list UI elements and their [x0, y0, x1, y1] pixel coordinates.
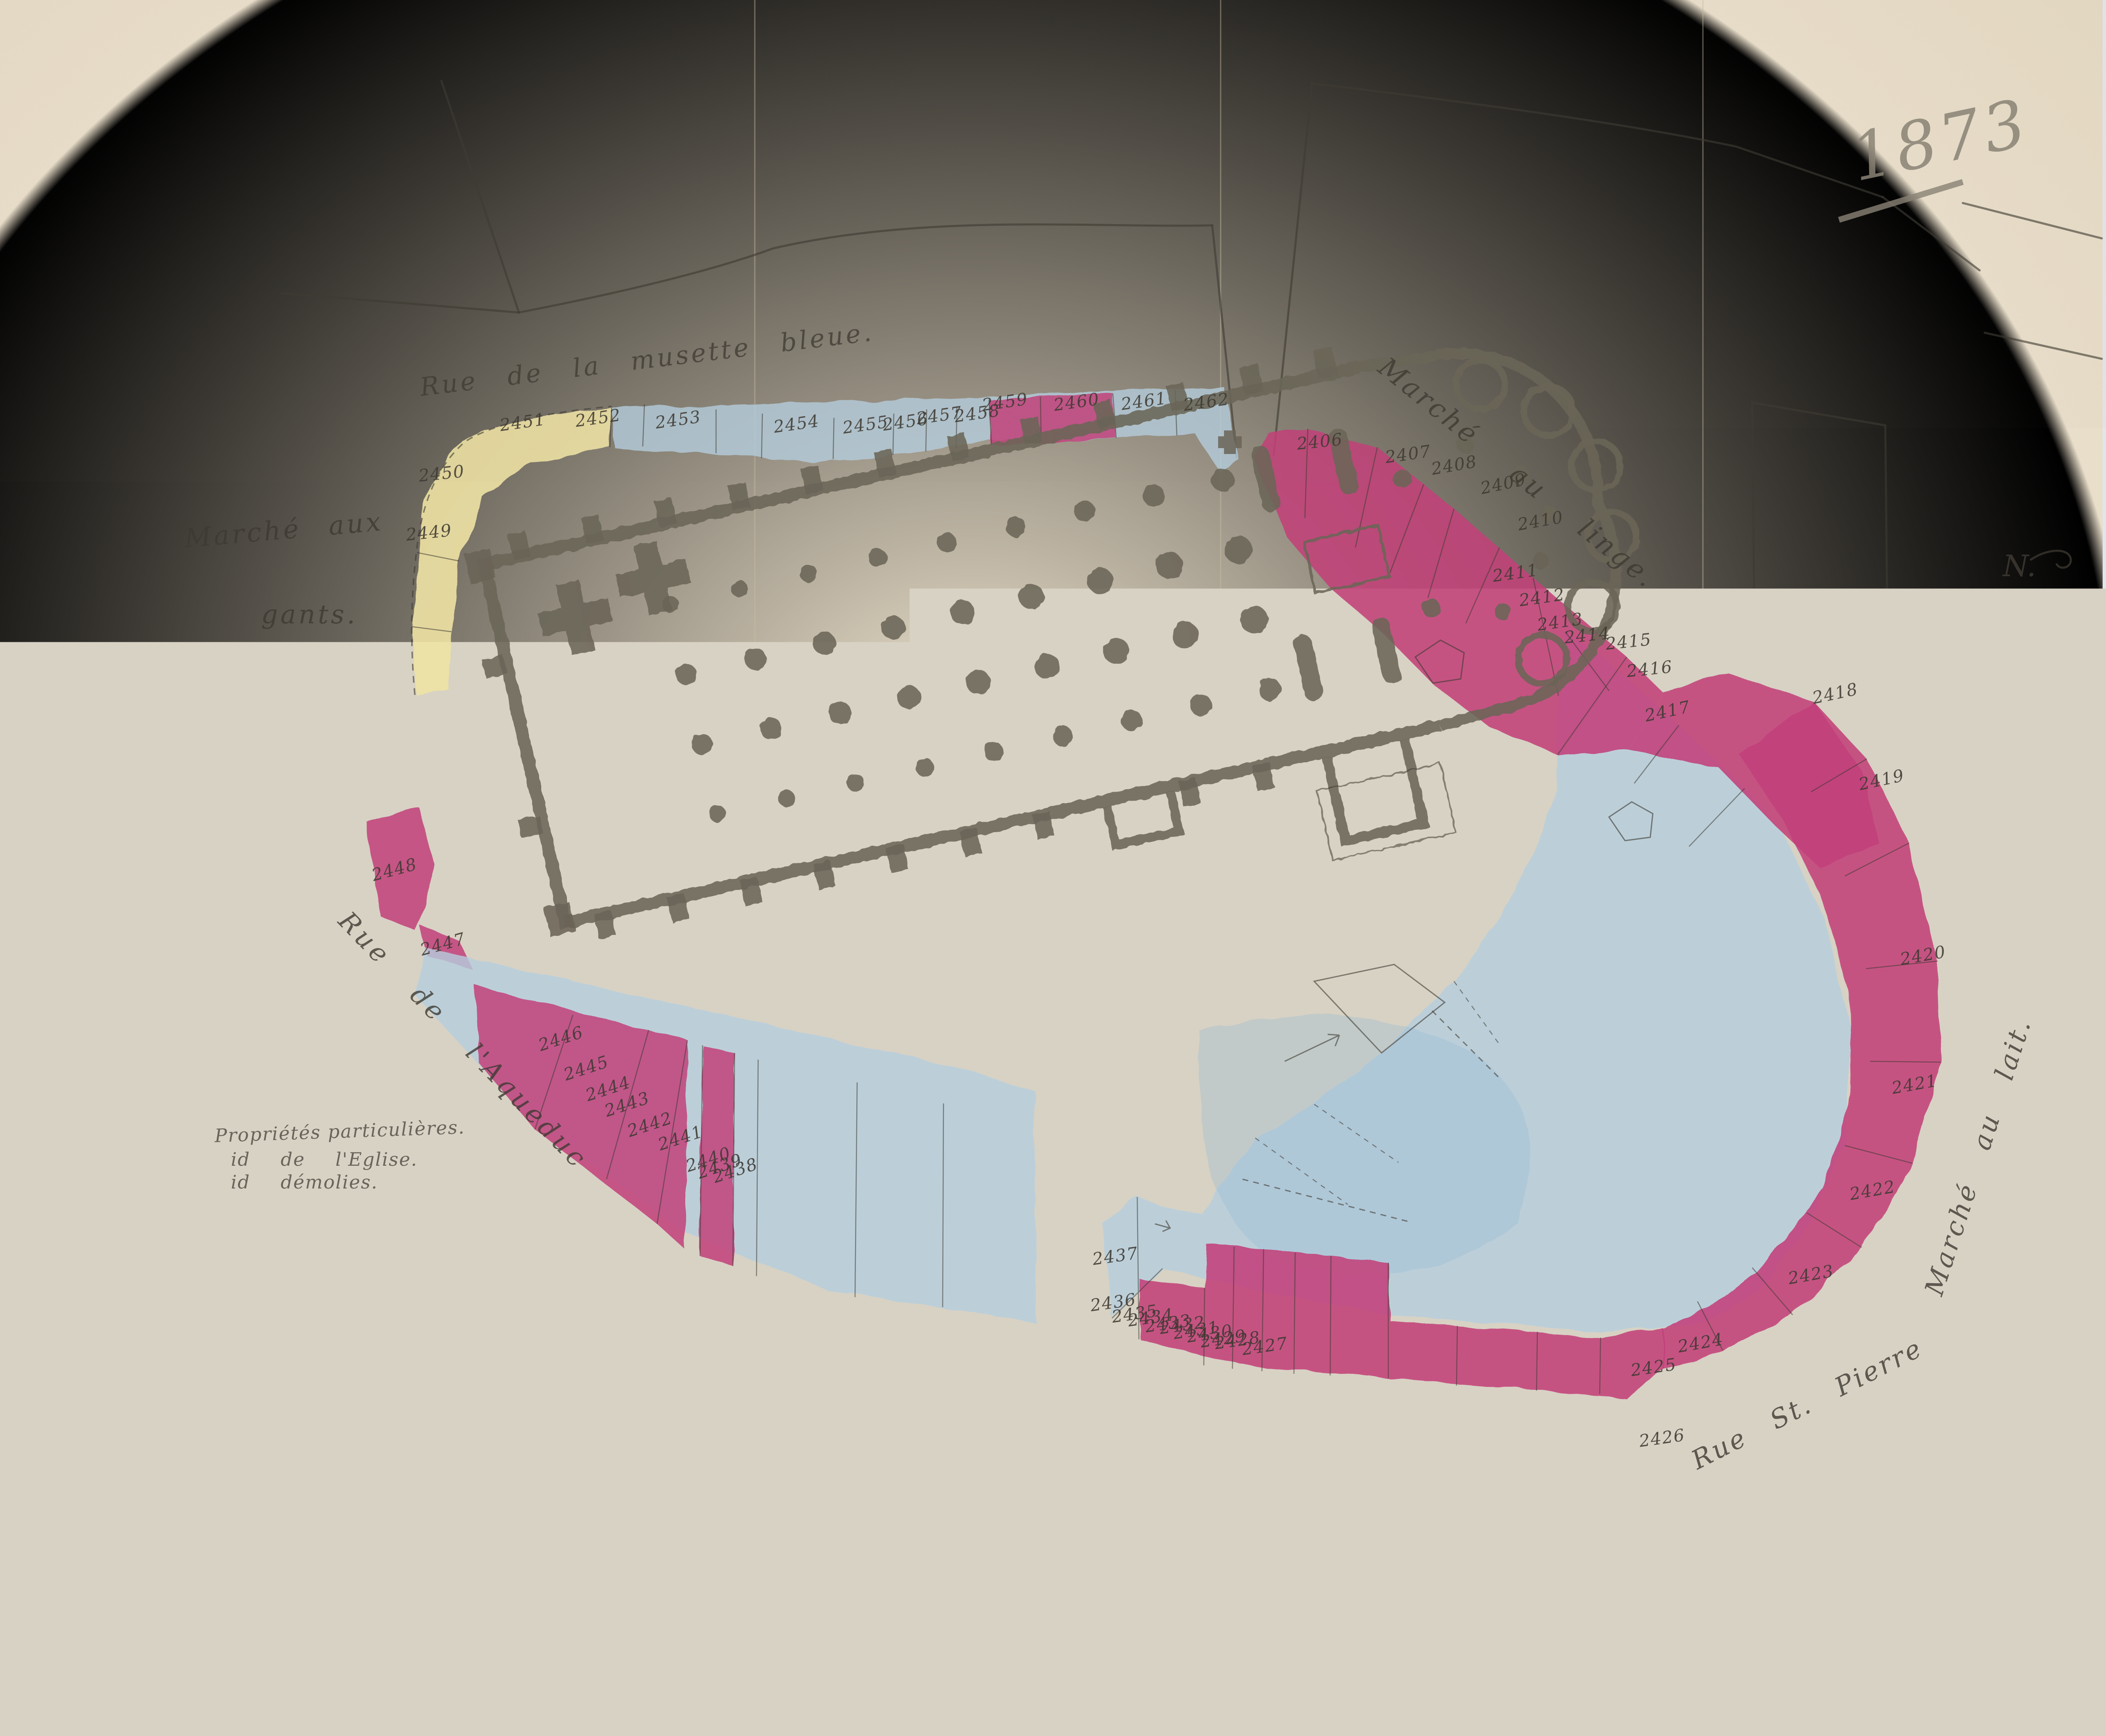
- street-label-gants-line2: gants.: [261, 599, 358, 630]
- scale-fraction-denominator: 500: [449, 1448, 483, 1469]
- scale-tick-30: 30: [526, 1383, 544, 1400]
- legend-label-church: id de l'Eglise.: [231, 1149, 418, 1170]
- scale-subtick-digit: 0: [201, 1391, 207, 1402]
- legend-swatch-private: [157, 1124, 204, 1146]
- sheet-note-numerator: 7: [741, 1461, 754, 1484]
- scale-tick-40: 40: [645, 1383, 664, 1400]
- legend-label-demolished: id démolies.: [231, 1172, 378, 1193]
- scan-edge-strip: [2103, 0, 2106, 1736]
- legend-swatch-church: [157, 1146, 204, 1167]
- legend-swatch-demolished: [157, 1167, 204, 1188]
- plan-canvas: Rue de la musette bleue. Marché au linge…: [0, 0, 2106, 1736]
- scale-tick-10: 10: [286, 1383, 304, 1400]
- scanned-map-sheet: Rue de la musette bleue. Marché au linge…: [0, 0, 2106, 1736]
- north-label: N.: [2002, 549, 2036, 583]
- scale-tick-20: 20: [405, 1383, 424, 1400]
- sheet-note-denominator: 12: [735, 1487, 760, 1510]
- sheet-note-year: 73: [765, 1471, 790, 1494]
- scale-fraction-numerator: 1: [460, 1424, 471, 1445]
